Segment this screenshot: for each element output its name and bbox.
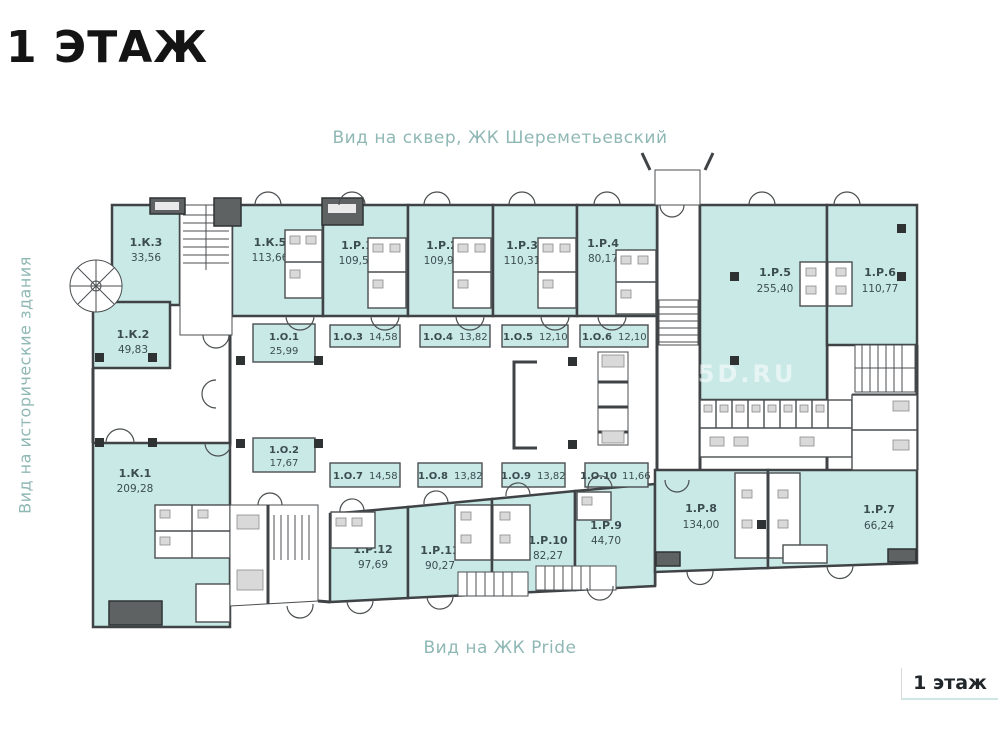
unit-1r6-name: 1.Р.6 — [864, 266, 896, 279]
kiosk-1o1-name: 1.О.1 — [269, 332, 299, 343]
wall-bracket-center — [514, 362, 537, 448]
unit-1k1-name: 1.К.1 — [119, 467, 152, 480]
kiosk-1o8-name: 1.О.8 — [418, 471, 448, 482]
kiosk-1o7: 1.О.7 14,58 — [330, 463, 400, 487]
kiosk-1o10-area: 11,66 — [622, 471, 651, 482]
unit-1r9-area: 44,70 — [591, 535, 621, 547]
unit-1k2-area: 49,83 — [118, 344, 148, 356]
kiosk-1o2-area: 17,67 — [270, 458, 299, 469]
unit-1r3-name: 1.Р.3 — [506, 239, 538, 252]
kiosk-1o3: 1.О.3 14,58 — [330, 325, 400, 347]
unit-1k2: 1.К.2 49,83 — [93, 302, 170, 368]
unit-1k1-area: 209,28 — [117, 483, 154, 495]
unit-1r5-area: 255,40 — [757, 283, 794, 295]
bath-cluster-1r12 — [331, 512, 375, 548]
kiosk-1o5: 1.О.5 12,10 — [502, 325, 568, 347]
unit-1r12-area: 97,69 — [358, 559, 388, 571]
watermark: S5D.RU — [678, 360, 797, 388]
unit-1r8-area: 134,00 — [683, 519, 720, 531]
unit-1r7-name: 1.Р.7 — [863, 503, 895, 516]
unit-1r10-name: 1.Р.10 — [528, 534, 568, 547]
unit-1k5-name: 1.К.5 — [254, 236, 287, 249]
bath-cluster-1r1 — [368, 238, 406, 308]
kiosk-1o2-name: 1.О.2 — [269, 445, 299, 456]
unit-1r11-area: 90,27 — [425, 560, 455, 572]
bath-cluster-1r3 — [538, 238, 576, 308]
unit-1r3-area: 110,31 — [504, 255, 541, 267]
unit-1r8-name: 1.Р.8 — [685, 502, 717, 515]
kiosk-1o10: 1.О.10 11,66 — [580, 463, 651, 487]
kiosk-1o8-area: 13,82 — [454, 471, 483, 482]
kiosk-1o9-name: 1.О.9 — [501, 471, 531, 482]
unit-1k3-area: 33,56 — [131, 252, 161, 264]
kiosk-1o6-name: 1.О.6 — [582, 332, 612, 343]
unit-1k5-area: 113,66 — [252, 252, 289, 264]
kiosk-1o3-name: 1.О.3 — [333, 332, 363, 343]
kiosk-1o3-area: 14,58 — [369, 332, 398, 343]
unit-1r10-area: 82,27 — [533, 550, 563, 562]
unit-1k2-name: 1.К.2 — [117, 328, 150, 341]
bath-cluster-1r11-1r10 — [455, 505, 530, 560]
spiral-staircase — [70, 260, 122, 312]
stair-right — [855, 345, 915, 392]
kiosk-1o7-area: 14,58 — [369, 471, 398, 482]
floor-plan-drawing: 1.К.3 33,56 1.К.5 113,66 1.Р.1 109,50 1.… — [0, 0, 1000, 750]
restroom-block-1r5 — [700, 400, 852, 457]
kiosk-1o4: 1.О.4 13,82 — [420, 325, 490, 347]
unit-1r9-name: 1.Р.9 — [590, 519, 622, 532]
unit-1r7-area: 66,24 — [864, 520, 894, 532]
unit-1r5-name: 1.Р.5 — [759, 266, 791, 279]
elevator-bank-center — [598, 352, 628, 445]
unit-1r4-area: 80,17 — [588, 253, 618, 265]
kiosk-1o9-area: 13,82 — [537, 471, 566, 482]
bath-cluster-1k5 — [285, 230, 322, 298]
kiosk-1o6: 1.О.6 12,10 — [580, 325, 648, 347]
unit-1r4-name: 1.Р.4 — [587, 237, 619, 250]
kiosk-1o1-area: 25,99 — [270, 346, 299, 357]
unit-1k3-name: 1.К.3 — [130, 236, 163, 249]
unit-1k3: 1.К.3 33,56 — [112, 205, 180, 305]
workstation-cluster-1r5-1r6 — [800, 262, 852, 306]
kiosk-1o7-name: 1.О.7 — [333, 471, 363, 482]
bath-cluster-1r2 — [453, 238, 491, 308]
unit-1r6-area: 110,77 — [862, 283, 899, 295]
service-rooms-right — [852, 395, 917, 470]
unit-1r11-name: 1.Р.11 — [420, 544, 459, 557]
stair-in-shaft — [659, 300, 698, 345]
kiosk-1o4-area: 13,82 — [459, 332, 488, 343]
floor-plan-page: 1 ЭТАЖ Вид на сквер, ЖК Шереметьевский В… — [0, 0, 1000, 750]
kiosk-1o2: 1.О.2 17,67 — [253, 438, 315, 472]
kiosk-1o4-name: 1.О.4 — [423, 332, 453, 343]
core-block-bottom — [230, 505, 318, 606]
kiosk-1o6-area: 12,10 — [618, 332, 647, 343]
bath-cluster-1r9 — [577, 492, 611, 520]
kiosk-1o8: 1.О.8 13,82 — [418, 463, 483, 487]
bath-cluster-1r4 — [616, 250, 656, 314]
kiosk-1o1: 1.О.1 25,99 — [253, 324, 315, 362]
kiosk-1o5-area: 12,10 — [539, 332, 568, 343]
kiosk-1o5-name: 1.О.5 — [503, 332, 533, 343]
kiosk-1o9: 1.О.9 13,82 — [501, 463, 566, 487]
